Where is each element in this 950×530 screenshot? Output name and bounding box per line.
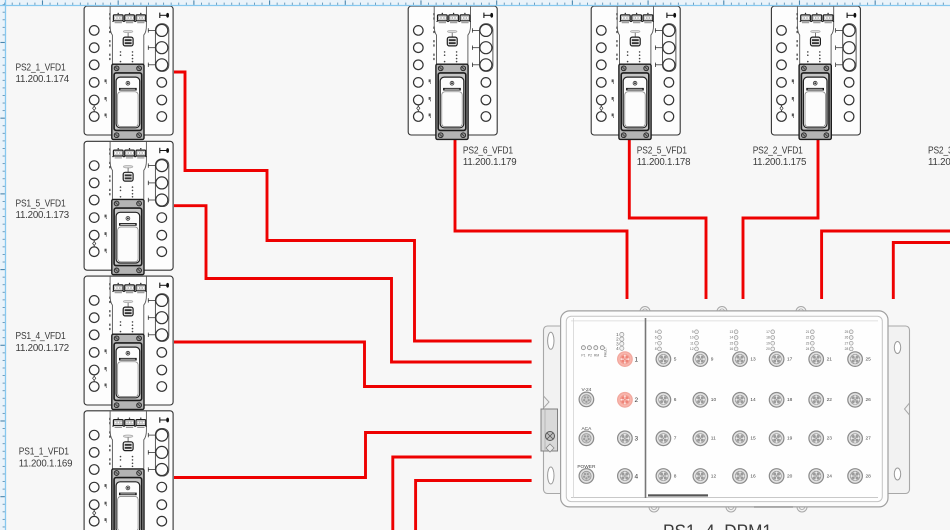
svg-text:6: 6 [674,397,677,403]
svg-text:24: 24 [827,473,833,479]
svg-text:3: 3 [635,436,639,443]
svg-text:9: 9 [711,357,714,363]
svg-text:23: 23 [827,436,833,442]
svg-text:1: 1 [635,356,639,363]
svg-text:12: 12 [711,473,717,479]
svg-text:11.200.1.178: 11.200.1.178 [637,157,691,168]
svg-text:11: 11 [690,341,694,345]
svg-text:11.200.1.175: 11.200.1.175 [753,157,807,168]
svg-text:11: 11 [711,436,716,442]
svg-text:21: 21 [806,330,810,334]
svg-text:18: 18 [787,397,793,403]
svg-text:25: 25 [845,330,849,334]
svg-text:19: 19 [766,341,770,345]
svg-text:14: 14 [750,397,756,403]
svg-text:FAULT: FAULT [604,347,608,357]
svg-text:13: 13 [730,330,734,334]
svg-text:25: 25 [866,357,872,363]
svg-text:15: 15 [750,436,756,442]
svg-text:22: 22 [827,397,833,403]
svg-text:6: 6 [655,336,657,340]
svg-text:17: 17 [766,330,770,334]
svg-text:26: 26 [866,397,872,403]
svg-text:PS2_2_VFD1: PS2_2_VFD1 [753,145,804,156]
svg-text:8: 8 [655,347,657,351]
svg-text:8: 8 [674,473,677,479]
svg-text:27: 27 [845,341,849,345]
svg-text:5: 5 [655,330,657,334]
svg-text:PS2_3_VFD1: PS2_3_VFD1 [928,145,950,156]
svg-text:13: 13 [750,357,756,363]
svg-text:PS1_4_VFD1: PS1_4_VFD1 [16,331,67,342]
svg-text:20: 20 [766,347,770,351]
svg-text:5: 5 [674,357,677,363]
svg-text:28: 28 [866,473,872,479]
svg-text:PS1_1_VFD1: PS1_1_VFD1 [19,447,70,458]
svg-text:21: 21 [827,357,833,363]
svg-text:11.200.1.176: 11.200.1.176 [928,157,950,168]
svg-text:PS1_4_DPM1: PS1_4_DPM1 [663,522,772,530]
svg-text:PS2_1_VFD1: PS2_1_VFD1 [16,62,67,73]
svg-text:12: 12 [690,347,694,351]
svg-text:16: 16 [750,473,756,479]
svg-text:PS2_5_VFD1: PS2_5_VFD1 [637,145,688,156]
svg-text:4: 4 [635,473,639,480]
svg-text:23: 23 [806,341,810,345]
svg-text:19: 19 [787,436,793,442]
svg-text:10: 10 [690,336,694,340]
svg-text:11.200.1.172: 11.200.1.172 [16,343,70,354]
svg-text:11.200.1.173: 11.200.1.173 [16,210,70,221]
svg-text:PS1_5_VFD1: PS1_5_VFD1 [16,198,67,209]
svg-text:PS2_6_VFD1: PS2_6_VFD1 [463,145,514,156]
svg-text:9: 9 [692,330,694,334]
svg-text:27: 27 [866,436,872,442]
svg-text:RM: RM [594,353,599,357]
svg-text:11.200.1.174: 11.200.1.174 [16,74,70,85]
svg-text:20: 20 [787,473,793,479]
svg-text:16: 16 [730,347,734,351]
svg-text:P2: P2 [588,353,592,357]
svg-text:14: 14 [730,336,734,340]
svg-text:24: 24 [806,347,810,351]
svg-text:10: 10 [711,397,717,403]
svg-text:2: 2 [635,397,639,404]
svg-text:15: 15 [730,341,734,345]
svg-text:22: 22 [806,336,810,340]
svg-text:17: 17 [787,357,793,363]
svg-text:7: 7 [674,436,677,442]
svg-text:11.200.1.169: 11.200.1.169 [19,458,73,469]
svg-text:26: 26 [845,336,849,340]
svg-text:18: 18 [766,336,770,340]
svg-text:P1: P1 [581,353,585,357]
svg-text:7: 7 [655,341,657,345]
svg-text:28: 28 [845,347,849,351]
svg-text:11.200.1.179: 11.200.1.179 [463,157,517,168]
